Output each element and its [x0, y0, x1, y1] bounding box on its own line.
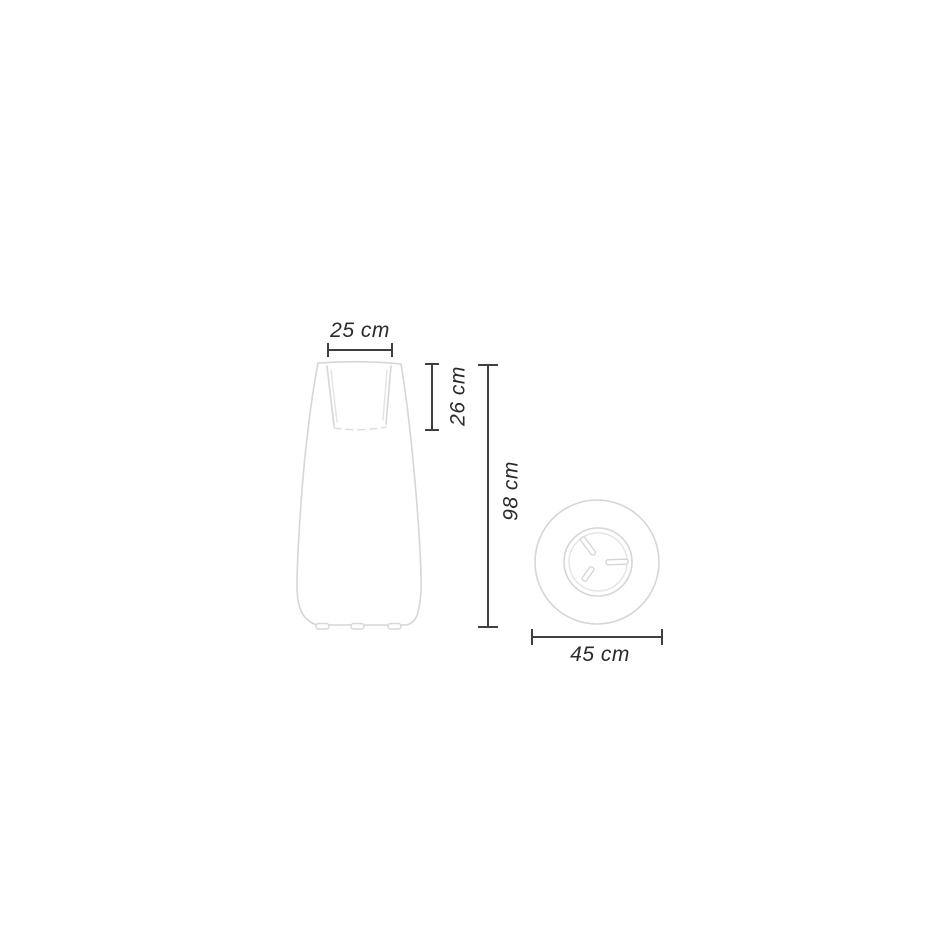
- planter-foot: [316, 624, 329, 630]
- dimension-diagram-canvas: 25 cm 26 cm 98 cm 45 cm: [0, 0, 950, 950]
- planter-inner-rim-bottom-dashed: [334, 427, 386, 430]
- top-view-tab: [581, 566, 594, 582]
- planter-outline: [297, 362, 421, 625]
- front-view: [297, 362, 421, 629]
- dimension-inner-depth: 26 cm: [425, 364, 469, 430]
- top-view-tab: [606, 559, 628, 565]
- dimension-base-diameter: 45 cm: [532, 629, 662, 666]
- planter-foot: [351, 624, 364, 630]
- planter-inner-rim-left: [327, 366, 334, 426]
- dimension-height: 98 cm: [478, 365, 522, 627]
- top-view-tab: [580, 536, 597, 556]
- top-view: [535, 500, 659, 624]
- dimension-top-width: 25 cm: [328, 319, 392, 357]
- dimension-label-height: 98 cm: [499, 461, 522, 521]
- dimension-label-top-width: 25 cm: [329, 319, 390, 342]
- dimension-label-base-diameter: 45 cm: [570, 643, 630, 666]
- top-view-outer-circle: [535, 500, 659, 624]
- planter-foot: [388, 624, 401, 630]
- diagram-page: 25 cm 26 cm 98 cm 45 cm: [0, 0, 950, 950]
- dimension-label-inner-depth: 26 cm: [446, 366, 469, 427]
